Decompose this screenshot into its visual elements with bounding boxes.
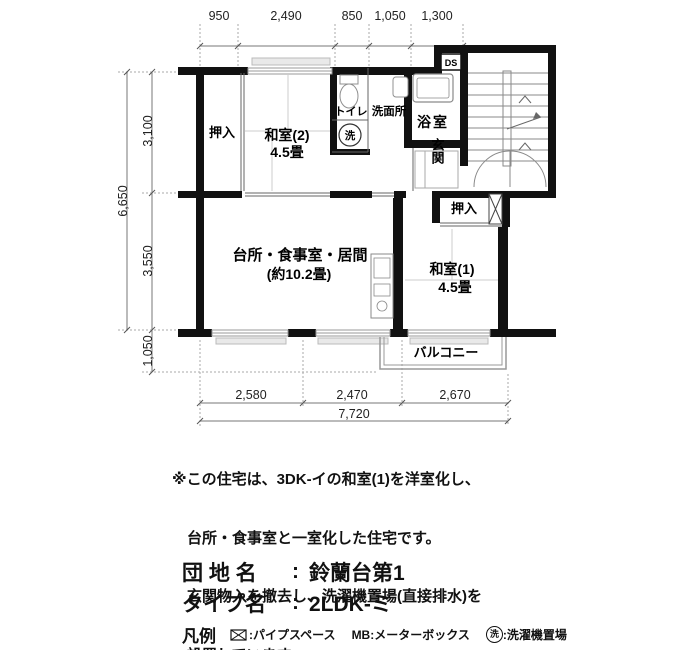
label-balcony: バルコニー: [414, 345, 479, 360]
dim-bottom-2470: 2,470: [336, 388, 367, 402]
note-line: 台所・食事室と一室化した住宅です。: [172, 529, 500, 549]
label-ldk: 台所・食事室・居間: [232, 246, 367, 264]
type-name-separator: :: [292, 591, 299, 615]
dim-top-1300: 1,300: [421, 9, 452, 23]
floor-plan-drawing: 950 2,490 850 1,050 1,300 3,100 6,650 3,…: [0, 0, 700, 430]
dim-left-6650: 6,650: [116, 185, 130, 216]
bathtub-fixture: [413, 74, 453, 102]
label-washitsu2: 和室(2): [264, 127, 309, 143]
entrance-door-arcs: [474, 151, 546, 187]
dim-bottom-7720: 7,720: [338, 407, 369, 421]
label-duct: DS: [445, 58, 458, 68]
laundry-circle-symbol: 洗: [486, 626, 503, 643]
dim-top-2490: 2,490: [270, 9, 301, 23]
dim-top-950: 950: [209, 9, 230, 23]
label-oshiire-right: 押入: [451, 201, 477, 216]
label-laundry-symbol: 洗: [345, 129, 356, 142]
label-washitsu1-size: 4.5畳: [438, 279, 471, 295]
dim-bottom-2580: 2,580: [235, 388, 266, 402]
info-block: 団 地 名 : 鈴蘭台第1 タイプ名 : 2LDK-ミ: [182, 556, 405, 618]
label-washroom: 洗面所: [372, 104, 407, 118]
pipe-space-symbol: [230, 629, 247, 641]
type-name-label: タイプ名: [182, 588, 286, 618]
label-bath: 浴室: [417, 114, 449, 130]
legend-pipe-space: :パイプスペース: [230, 626, 336, 643]
dim-left-3100: 3,100: [141, 115, 155, 146]
legend-laundry-label: :洗濯機置場: [503, 626, 567, 643]
pipe-space-box: [489, 194, 502, 224]
legend-pipe-label: :パイプスペース: [249, 626, 336, 643]
legend-meter-box: MB:メーターボックス: [352, 626, 470, 643]
staircase: [468, 71, 548, 166]
legend-laundry: 洗 :洗濯機置場: [486, 626, 567, 643]
dim-top-1050: 1,050: [374, 9, 405, 23]
walls: [178, 45, 556, 337]
note-line: ※この住宅は、3DK-イの和室(1)を洋室化し、: [172, 470, 500, 490]
estate-name-label: 団 地 名: [182, 557, 286, 587]
toilet-fixture: [340, 75, 358, 108]
dim-bottom-2670: 2,670: [439, 388, 470, 402]
type-name-row: タイプ名 : 2LDK-ミ: [182, 587, 405, 618]
sink-fixture: [393, 77, 408, 97]
dim-left-1050: 1,050: [141, 335, 155, 366]
type-name-value: 2LDK-ミ: [309, 588, 392, 618]
legend-title: 凡例: [182, 622, 216, 647]
dim-left-3550: 3,550: [141, 245, 155, 276]
label-ldk-size: (約10.2畳): [267, 266, 332, 282]
estate-name-row: 団 地 名 : 鈴蘭台第1: [182, 556, 405, 587]
estate-name-value: 鈴蘭台第1: [309, 557, 405, 587]
label-toilet: トイレ: [335, 105, 368, 118]
label-washitsu1: 和室(1): [429, 261, 474, 277]
label-entrance: 玄関: [430, 137, 445, 165]
estate-name-separator: :: [292, 560, 299, 584]
kitchen-counter: [371, 254, 393, 318]
legend-row: 凡例 :パイプスペース MB:メーターボックス 洗 :洗濯機置場: [182, 622, 583, 647]
legend-mb-label: MB:メーターボックス: [352, 626, 470, 643]
dim-top-850: 850: [342, 9, 363, 23]
label-washitsu2-size: 4.5畳: [270, 144, 303, 160]
label-oshiire-left: 押入: [209, 125, 235, 140]
floor-plan-page: 950 2,490 850 1,050 1,300 3,100 6,650 3,…: [0, 0, 700, 650]
